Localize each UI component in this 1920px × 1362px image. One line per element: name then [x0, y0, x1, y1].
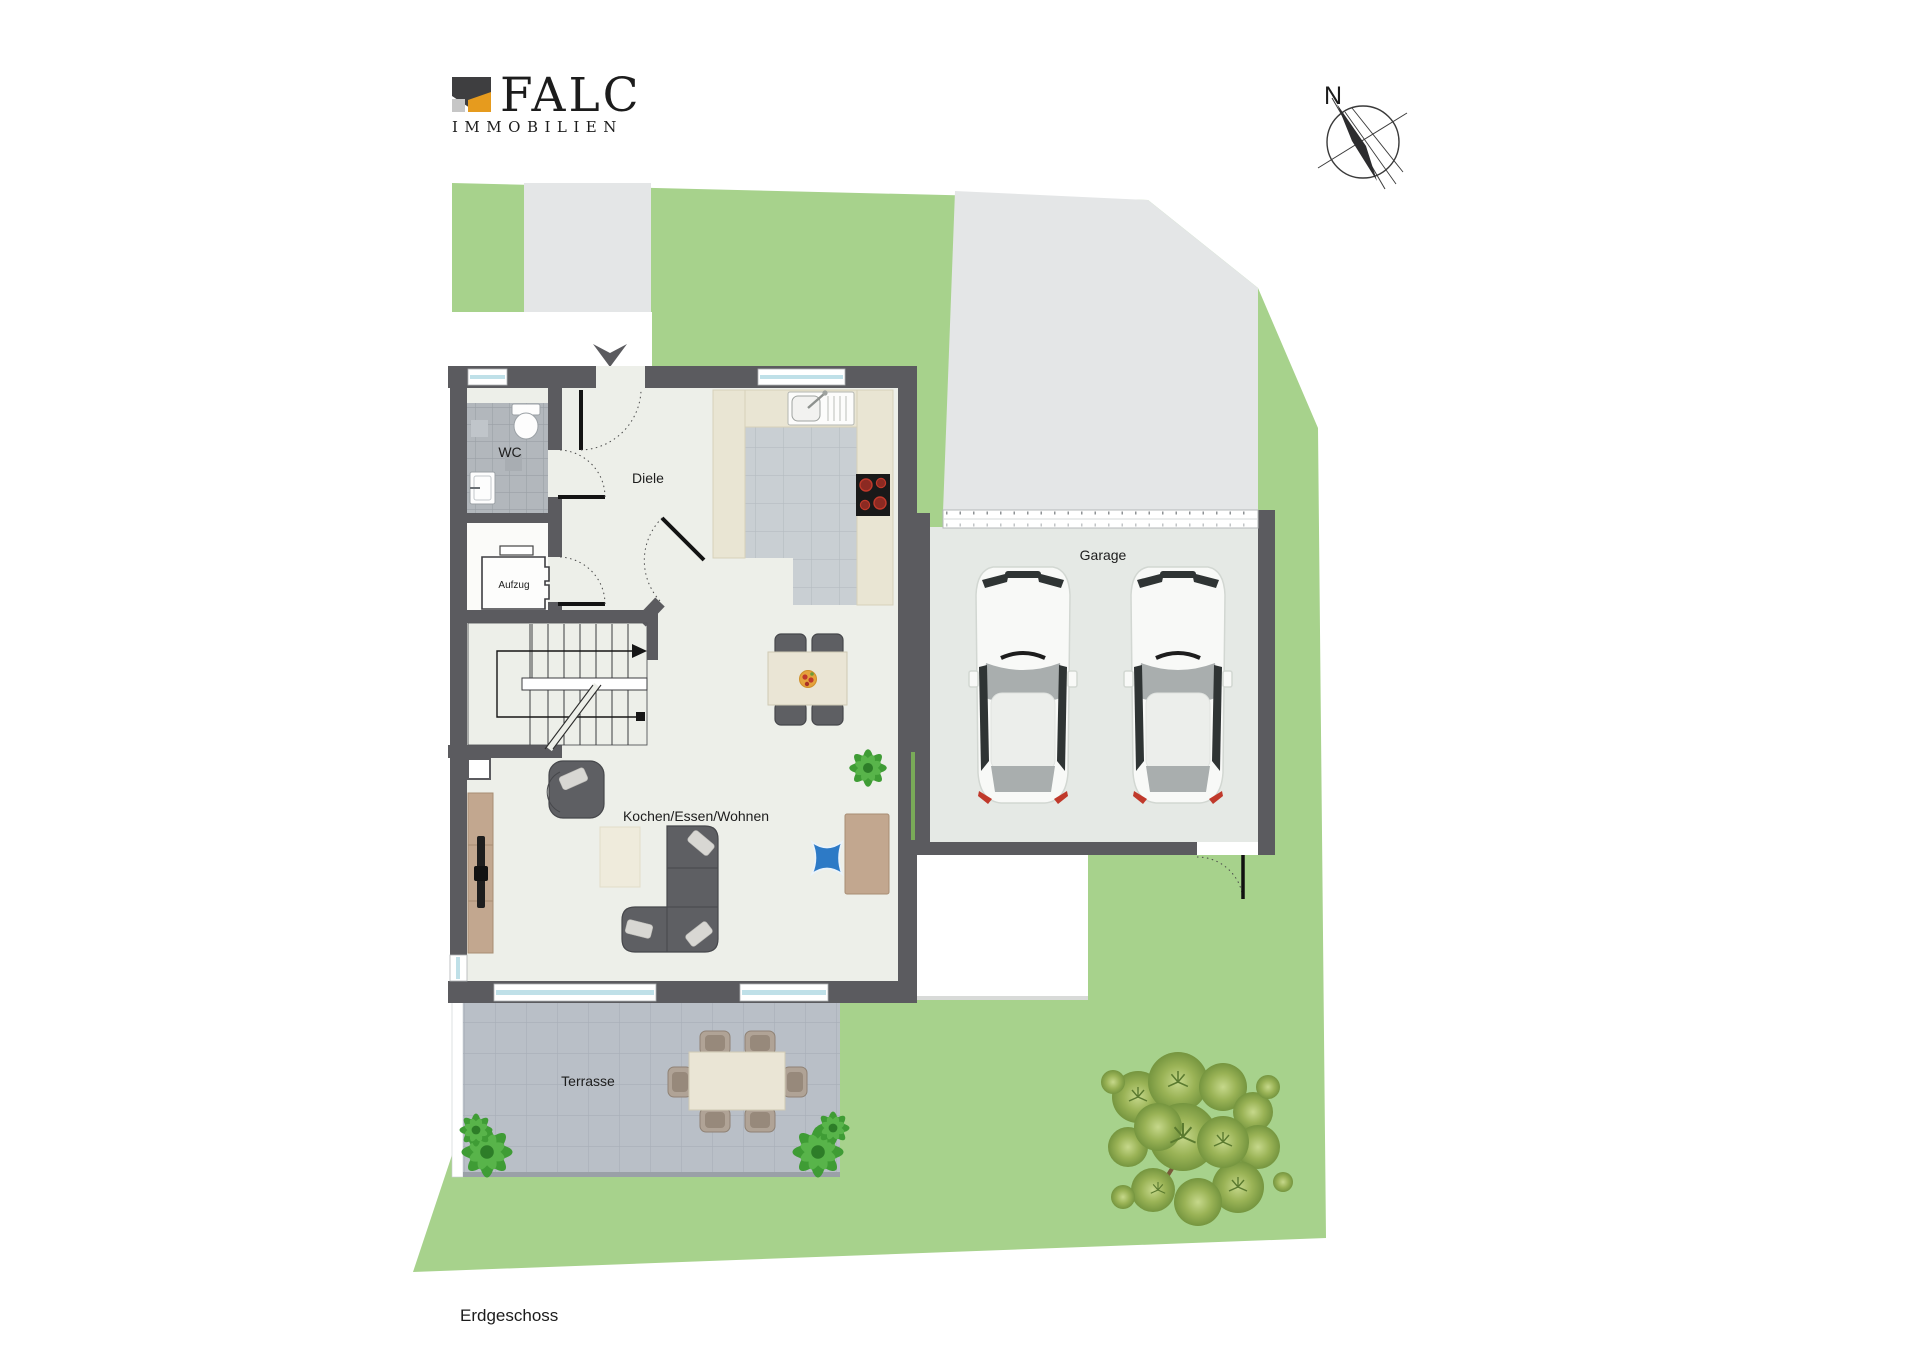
- terrace-table: [689, 1052, 785, 1110]
- compass-needle-icon: [1337, 104, 1377, 181]
- garage-wall-left: [917, 513, 930, 855]
- falc-house-icon: [452, 77, 491, 112]
- wall-planter-strip: [911, 752, 915, 840]
- stairs-landing-bar: [522, 678, 647, 690]
- diele-label: Diele: [632, 470, 664, 486]
- floorplan-page: Garage: [0, 0, 1920, 1357]
- desk-chair: [812, 842, 842, 874]
- entrance-opening: [596, 366, 645, 388]
- car-left: [969, 567, 1077, 804]
- wc-door-opening: [548, 450, 562, 497]
- plot-left-margin: [360, 180, 452, 1155]
- elevator-label: Aufzug: [498, 580, 529, 591]
- terrace-plant-left-2: [460, 1114, 493, 1147]
- terrace-label: Terrasse: [561, 1073, 615, 1089]
- wc-window: [468, 369, 507, 385]
- wc-label: WC: [498, 444, 521, 460]
- wall-left: [450, 366, 467, 1003]
- terrace-slider: [494, 984, 656, 1001]
- wall-wc-lobby: [467, 513, 552, 523]
- counter-left: [713, 390, 745, 558]
- garage: Garage: [913, 510, 1275, 899]
- indoor-plant: [849, 749, 887, 787]
- cooktop-icon: [856, 474, 890, 516]
- terrace: Terrasse: [452, 1000, 850, 1178]
- compass: N: [1318, 82, 1407, 189]
- brand-subtitle: IMMOBILIEN: [452, 118, 623, 136]
- garage-door: [943, 510, 1258, 528]
- garage-wall-right: [1258, 510, 1275, 855]
- living-window: [740, 984, 828, 1001]
- tv-sideboard: [468, 793, 493, 953]
- floorplan-drawing: Garage: [0, 0, 1920, 1357]
- kitchen-sink-icon: [788, 390, 854, 425]
- area-below-garage: [913, 855, 1088, 1000]
- brand-logo: FALC IMMOBILIEN: [452, 68, 642, 136]
- terrace-plant-right-2: [817, 1112, 850, 1145]
- fruit-bowl-icon: [800, 671, 817, 688]
- garage-wall-bottom: [913, 842, 1197, 855]
- wall-stairs-top: [450, 610, 658, 623]
- garage-label: Garage: [1080, 547, 1127, 563]
- wall-stairs-bottom: [448, 745, 562, 758]
- elevator-door: [500, 546, 533, 555]
- car-right: [1124, 567, 1232, 804]
- lobby-door-opening: [548, 557, 562, 602]
- entrance-walkway: [524, 183, 651, 312]
- desk: [845, 814, 889, 894]
- kitchen-window: [758, 369, 845, 385]
- toilet-bowl-icon: [514, 413, 538, 439]
- compass-fan-line: [1345, 112, 1396, 184]
- compass-north-label: N: [1324, 82, 1342, 110]
- left-wall-window: [450, 955, 467, 981]
- wall-niche: [468, 759, 490, 779]
- terrace-edge-strip: [452, 1002, 463, 1177]
- rug: [600, 827, 640, 887]
- armchair: [547, 761, 604, 818]
- living-label: Kochen/Essen/Wohnen: [623, 808, 769, 824]
- wall-right: [898, 366, 917, 1003]
- terrace-border: [463, 1172, 840, 1177]
- brand-name: FALC: [500, 68, 642, 123]
- entrance-porch: [452, 312, 652, 368]
- tv-base: [474, 866, 488, 881]
- floor-caption: Erdgeschoss: [460, 1306, 558, 1325]
- driveway: [943, 191, 1258, 512]
